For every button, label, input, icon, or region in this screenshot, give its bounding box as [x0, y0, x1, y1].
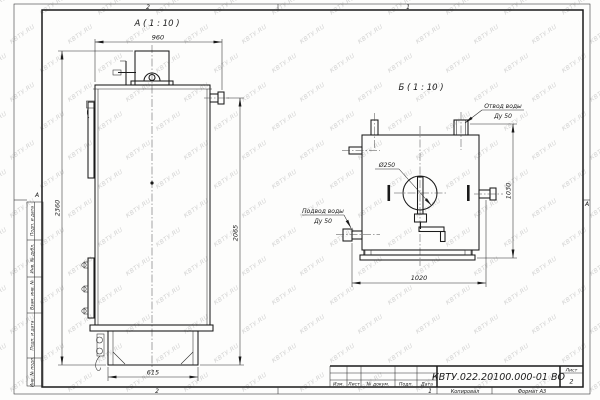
rear-base-skid	[360, 250, 475, 260]
left-margin-columns: Подп. и дата Инв. № дубл. Взам. инв. № П…	[27, 202, 43, 387]
dim-1020: 1020	[352, 200, 486, 287]
margin-col-label: Подп. и дата	[30, 206, 36, 236]
flue-diameter-text: Ø250	[378, 162, 395, 169]
margin-col-label: Подп. и дата	[30, 320, 36, 350]
boiler-body	[93, 85, 212, 325]
tb-col-list: Лист	[347, 382, 360, 388]
inlet-label-line2: Ду 50	[313, 218, 332, 225]
format-label: Формат А3	[518, 389, 546, 395]
lower-hinge-strip	[82, 258, 94, 318]
rear-body-box	[362, 135, 479, 250]
dim-2065-text: 2065	[232, 225, 240, 242]
dim-1020-text: 1020	[411, 274, 428, 282]
left-horizontal-stub	[342, 147, 380, 154]
tb-sheet-label: Лист	[565, 368, 578, 374]
view-b-title: Б ( 1 : 10 )	[398, 83, 443, 93]
footer-strip: Копировал Формат А3	[437, 387, 546, 395]
water-outlet-fitting	[454, 112, 468, 150]
inlet-label-line1: Подвод воды	[302, 208, 344, 215]
view-b-boiler-rear: Б ( 1 : 10 )	[302, 83, 524, 287]
tb-doc-number: КВТУ.022.20100.000-01 ВО	[432, 372, 565, 383]
dim-1030: 1030	[470, 124, 517, 258]
right-mid-stub	[474, 188, 503, 200]
drawing-sheet: КВТУ.RUКВТУ.RUКВТУ.RUКВТУ.RUКВТУ.RUКВТУ.…	[0, 0, 600, 400]
dim-960-text: 960	[152, 34, 164, 42]
zone-top-left: 2	[146, 4, 150, 11]
outlet-label-line1: Отвод воды	[484, 103, 522, 110]
right-slot	[467, 185, 470, 201]
outlet-label-line2: Ду 50	[493, 113, 512, 120]
base-assembly	[90, 325, 213, 365]
zone-bottom-left: 2	[155, 388, 159, 395]
water-outlet-label: Отвод воды Ду 50	[465, 103, 524, 123]
view-a-center-point	[150, 181, 153, 184]
zone-right-letter: А	[584, 201, 589, 208]
margin-col-label: Взам. инв. №	[30, 280, 36, 310]
zone-bottom-right: 1	[428, 388, 432, 395]
left-slot	[388, 185, 391, 201]
engineering-drawing: 2 1 2 1 А А Подп. и дата Инв. № дубл. Вз…	[0, 0, 600, 400]
dim-1030-text: 1030	[505, 183, 513, 200]
dim-2360-text: 2360	[54, 200, 62, 217]
view-a-title: А ( 1 : 10 )	[133, 19, 179, 29]
flue-outlet	[403, 176, 445, 242]
top-left-stub	[371, 113, 378, 150]
copied-label: Копировал	[451, 389, 480, 395]
zone-top-right: 1	[406, 4, 410, 11]
upper-hinge-strip	[87, 101, 95, 178]
dim-615-text: 615	[147, 369, 159, 377]
title-block: Изм. Лист № докум. Подп. Дата КВТУ.022.2…	[330, 366, 583, 388]
tb-sheet-number: 2	[569, 378, 573, 386]
tb-col-podp: Подп.	[399, 382, 413, 388]
water-inlet-label: Подвод воды Ду 50	[302, 208, 351, 228]
margin-col-label: Инв. № дубл.	[30, 243, 36, 273]
tb-col-docnum: № докум.	[366, 382, 390, 388]
zone-left-letter: А	[34, 192, 39, 199]
tb-col-izm: Изм.	[333, 382, 344, 388]
margin-col-label: Инв. № подл.	[30, 357, 36, 387]
dim-615: 615	[108, 367, 198, 381]
water-inlet-fitting	[336, 229, 380, 241]
view-a-boiler-front: А ( 1 : 10 )	[54, 19, 245, 381]
